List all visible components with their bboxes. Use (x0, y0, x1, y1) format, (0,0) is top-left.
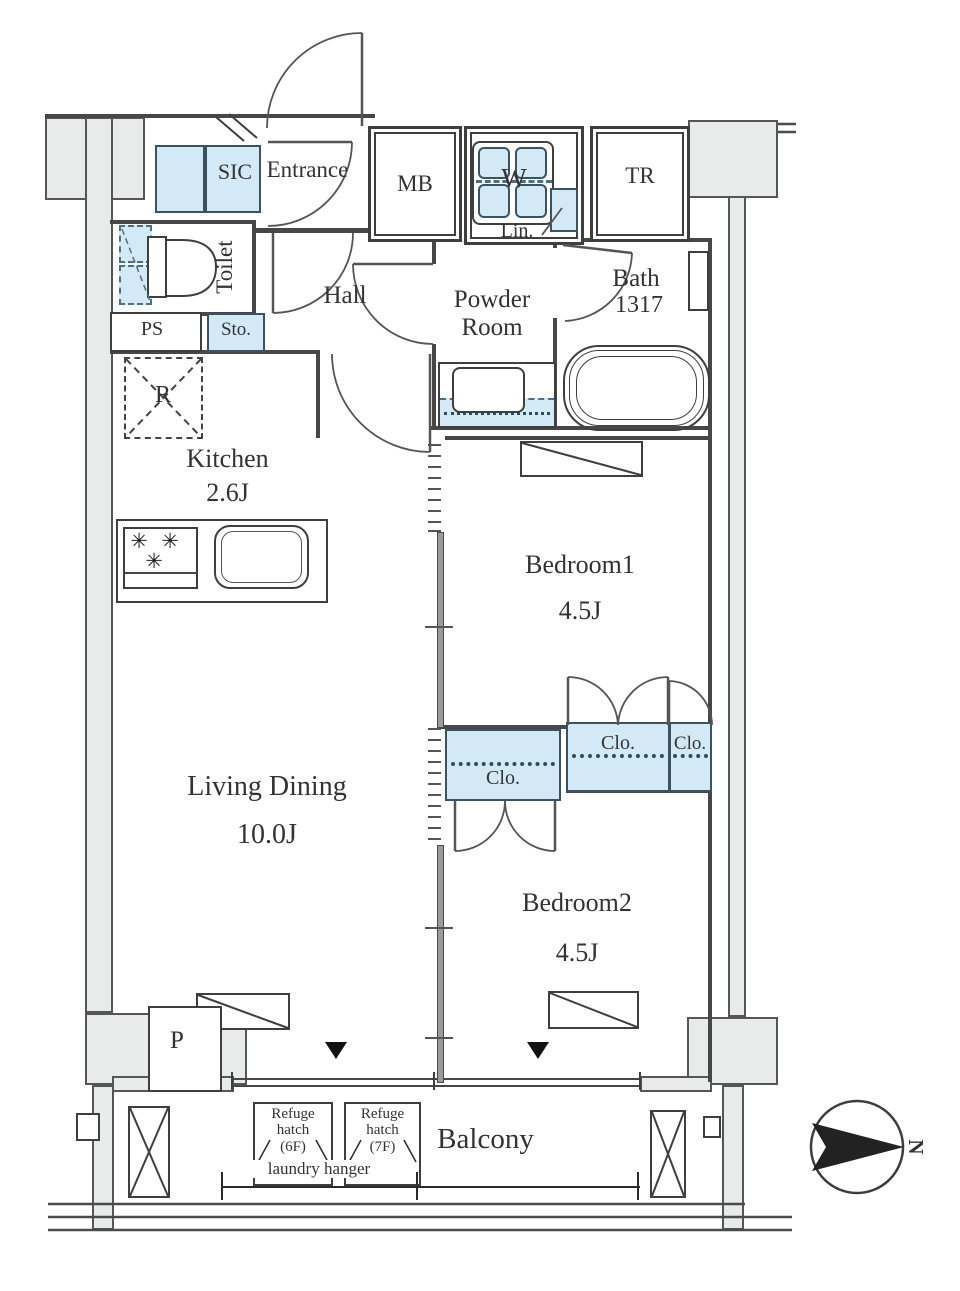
label-hatch6f-line3: (6F) (253, 1140, 333, 1156)
wall-top-outer (45, 114, 375, 118)
label-powder-line1: Powder (437, 287, 547, 313)
window-marker-right (527, 1042, 549, 1059)
kitchen-door-arc (332, 354, 430, 452)
label-mb: MB (385, 172, 445, 196)
toilet-bowl (166, 240, 216, 296)
label-bedroom2-size: 4.5J (502, 939, 652, 966)
label-compass-north: N (905, 1133, 927, 1161)
label-closet-bedroom1-small: Clo. (667, 734, 713, 754)
label-bedroom1-size: 4.5J (505, 597, 655, 624)
label-hatch6f-line2: hatch (253, 1123, 333, 1139)
toilet-washlet-lower (119, 265, 152, 305)
entrance-inner-door-arc (268, 142, 352, 226)
label-ps: PS (122, 319, 182, 340)
wall-top-right-column (688, 120, 778, 198)
bath-counter (688, 251, 709, 311)
label-closet-bedroom1-large: Clo. (585, 733, 651, 754)
label-bath-line2: 1317 (599, 293, 679, 318)
kitchen-sink-inner (221, 531, 302, 583)
label-hatch7f-line3: (7F) (344, 1140, 421, 1156)
balcony-divider-right (650, 1110, 686, 1198)
wall-entrance-sill (253, 228, 377, 233)
closet-bedroom2-dots (451, 762, 555, 766)
closet-b2-left-door-arc (455, 801, 505, 851)
wall-toilet-right (252, 220, 256, 316)
wall-powder-left-lower (432, 344, 436, 428)
label-hall: Hall (308, 283, 382, 309)
label-toilet: Toilet (213, 212, 237, 322)
wall-right-inner (708, 238, 712, 1082)
closet-bedroom1-small-dots (673, 754, 708, 758)
label-entrance: Entrance (250, 158, 365, 182)
linen-box (550, 188, 578, 232)
entrance-step-hatch-1 (216, 117, 244, 141)
shelf-bedroom2 (548, 991, 639, 1029)
compass-arrow-icon (812, 1123, 904, 1171)
label-bath-line1: Bath (596, 266, 676, 292)
label-linen: Lin. (490, 221, 544, 242)
label-bedroom1: Bedroom1 (505, 551, 655, 578)
closet-bedroom1-large-dots (572, 754, 664, 758)
label-trunk: TR (612, 164, 668, 188)
stove-burner-icon-3: ✳ (141, 551, 167, 572)
partition-bar-upper (437, 532, 444, 728)
sic-box-left (155, 145, 205, 213)
label-refrigerator: R (143, 383, 183, 408)
wall-left-strip (85, 117, 113, 1013)
label-balcony: Balcony (408, 1124, 563, 1154)
label-storage: Sto. (209, 320, 263, 340)
label-kitchen-size: 2.6J (160, 479, 295, 506)
compass-circle (811, 1101, 903, 1193)
closet2-door-arc (669, 681, 712, 725)
label-pillar: P (140, 1028, 214, 1054)
balcony-support-right (703, 1116, 721, 1138)
wall-hall-stub (316, 352, 320, 438)
wall-balcony-left-strip (92, 1085, 114, 1230)
shelf-bedroom1 (520, 441, 643, 477)
wall-balcony-bottom-right-seg (640, 1076, 712, 1092)
wall-balcony-right-strip (722, 1085, 744, 1230)
wall-bedroom1-top (445, 436, 712, 440)
wall-bottom-right-column (687, 1017, 778, 1085)
label-kitchen: Kitchen (160, 445, 295, 472)
window-line-inner (232, 1085, 642, 1087)
floor-plan: SIC Entrance MB W Lin. TR Toilet PS Sto.… (0, 0, 960, 1291)
window-marker-left (325, 1042, 347, 1059)
label-living-dining: Living Dining (158, 772, 376, 801)
label-bedroom2: Bedroom2 (502, 889, 652, 916)
wash-basin (452, 367, 525, 413)
label-powder-line2: Room (437, 315, 547, 341)
label-laundry-hanger: laundry hanger (243, 1160, 395, 1178)
partition-bar-lower (437, 845, 444, 1083)
label-hatch7f-line1: Refuge (344, 1107, 421, 1123)
wall-right-strip (728, 196, 746, 1017)
label-hatch6f-line1: Refuge (253, 1107, 333, 1123)
toilet-washlet-upper (119, 225, 152, 263)
closet1-right-door-arc (618, 677, 668, 725)
partition-ladder-upper (428, 445, 441, 531)
bath-door-leaf (563, 245, 632, 253)
label-living-dining-size: 10.0J (158, 820, 376, 849)
balcony-divider-left (128, 1106, 170, 1198)
balcony-support-left (76, 1113, 100, 1141)
partition-ladder-lower (428, 729, 441, 839)
closet1-left-door-arc (568, 677, 618, 725)
closet-b2-right-door-arc (505, 801, 555, 851)
bathtub-inner (576, 356, 697, 420)
label-closet-bedroom2: Clo. (470, 768, 536, 789)
label-hatch7f-line2: hatch (344, 1123, 421, 1139)
label-washer: W (494, 164, 534, 192)
